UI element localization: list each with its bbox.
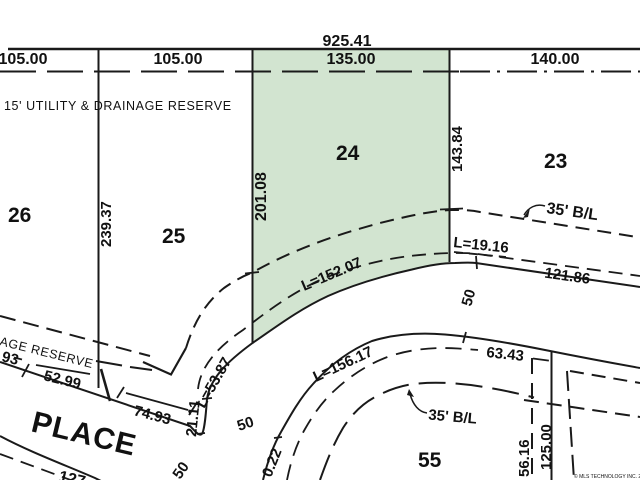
svg-text:201.08: 201.08 — [253, 172, 270, 221]
svg-text:143.84: 143.84 — [449, 125, 466, 172]
svg-text:25: 25 — [162, 225, 186, 248]
svg-text:135.00: 135.00 — [327, 51, 376, 68]
svg-text:55: 55 — [418, 449, 442, 472]
svg-text:125.00: 125.00 — [538, 424, 555, 470]
svg-text:239.37: 239.37 — [98, 201, 115, 247]
svg-text:15' UTILITY & DRAINAGE RESERVE: 15' UTILITY & DRAINAGE RESERVE — [4, 99, 232, 113]
svg-text:23: 23 — [544, 150, 567, 173]
svg-text:140.00: 140.00 — [531, 51, 580, 68]
svg-text:105.00: 105.00 — [0, 51, 48, 68]
svg-text:105.00: 105.00 — [154, 51, 203, 68]
svg-text:26: 26 — [8, 204, 31, 227]
svg-text:© MLS TECHNOLOGY INC. 2015: © MLS TECHNOLOGY INC. 2015 — [574, 473, 640, 480]
svg-text:24: 24 — [336, 142, 360, 165]
svg-text:56.16: 56.16 — [516, 439, 533, 477]
svg-text:925.41: 925.41 — [323, 33, 372, 50]
